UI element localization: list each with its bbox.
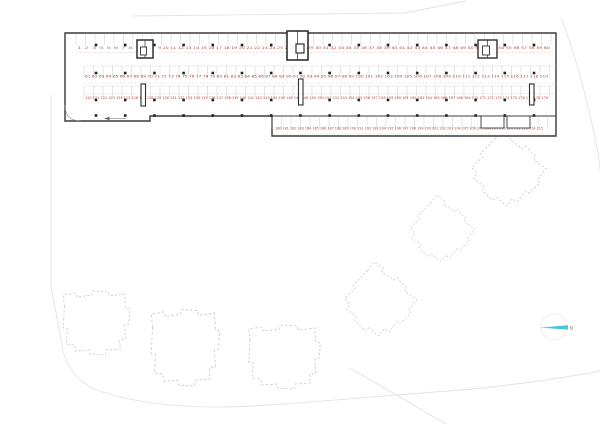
footprint-building-4 [336,259,423,346]
column [387,44,390,47]
stair-core-center [287,31,308,60]
building-footprints [63,127,551,389]
column [328,114,331,117]
column [416,72,419,75]
column [95,114,98,117]
parking-numbers-row1-left: 1 2 3 4 5 6 7 8 [77,46,133,50]
column [182,99,185,102]
column [533,114,536,117]
column [241,44,244,47]
column [358,114,361,117]
column [212,72,215,75]
column [124,44,127,47]
column [416,99,419,102]
site-boundary-access-road [350,368,446,424]
column [504,99,507,102]
elevator-shaft-west [141,84,146,106]
column [445,72,448,75]
column [241,72,244,75]
column [153,114,156,117]
column [241,99,244,102]
north-label: N [570,326,574,332]
column [124,99,127,102]
column [504,72,507,75]
column [328,72,331,75]
column [153,72,156,75]
column [387,72,390,75]
column [124,72,127,75]
column [299,114,302,117]
column [328,99,331,102]
column [474,72,477,75]
column [387,114,390,117]
site-boundary-right [561,18,600,170]
column [270,72,273,75]
column [124,114,127,117]
column [182,114,185,117]
site-boundary-left-bottom [51,95,600,407]
parking-numbers-row2: 61 62 63 64 65 66 67 68 69 70 71 72 73 7… [85,75,548,79]
footprint-building-5 [402,193,479,270]
column [270,99,273,102]
floor-plan-page: 1 2 3 4 5 6 7 8 9 10 11 12 13 14 15 16 1… [0,0,600,424]
column [153,99,156,102]
elevator-shaft-center [299,79,304,105]
column [416,114,419,117]
stair-core-west [137,40,153,58]
column [182,44,185,47]
column [328,44,331,47]
column [445,44,448,47]
parking-garage: 1 2 3 4 5 6 7 8 9 10 11 12 13 14 15 16 1… [65,31,556,136]
column [182,72,185,75]
site-boundary-top [133,1,466,16]
site-plan-canvas: 1 2 3 4 5 6 7 8 9 10 11 12 13 14 15 16 1… [0,0,600,424]
footprint-building-1 [63,291,129,355]
column [387,99,390,102]
column [533,44,536,47]
column [416,44,419,47]
stair-core-east [478,40,497,58]
column [299,72,302,75]
column [504,44,507,47]
column [474,99,477,102]
column [212,99,215,102]
column [533,72,536,75]
column [95,99,98,102]
column [474,114,477,117]
column [241,114,244,117]
elevator-shaft-east [530,84,535,105]
column [358,99,361,102]
column [95,72,98,75]
column [445,99,448,102]
footprint-building-3 [249,325,320,389]
north-arrow-icon [540,325,568,329]
column [358,44,361,47]
column [212,114,215,117]
column [358,72,361,75]
column [474,44,477,47]
footprint-building-6 [462,127,551,216]
column [445,114,448,117]
footprint-building-2 [151,309,219,386]
column [270,44,273,47]
north-indicator: N [540,314,574,340]
column [95,44,98,47]
column [270,114,273,117]
column [212,44,215,47]
